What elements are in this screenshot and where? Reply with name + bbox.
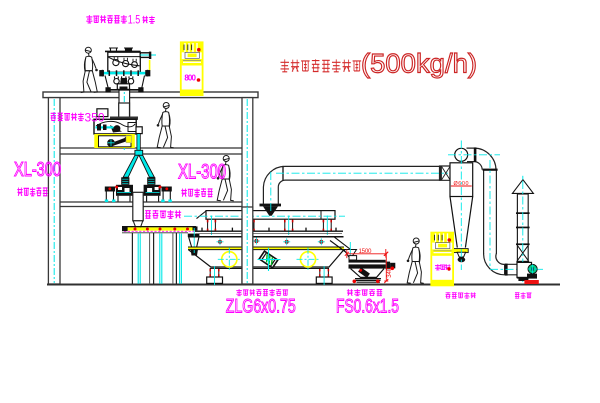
svg-text:ZLG6x0.75: ZLG6x0.75: [226, 297, 296, 318]
svg-text:XL-300: XL-300: [14, 159, 61, 181]
svg-text:XL-300: XL-300: [178, 161, 226, 184]
svg-text:800: 800: [184, 73, 196, 82]
svg-text:1.5: 1.5: [128, 13, 141, 27]
svg-text:350: 350: [85, 110, 105, 124]
svg-text:(500kg/h): (500kg/h): [361, 49, 477, 79]
svg-text:FS0.6x1.5: FS0.6x1.5: [336, 297, 399, 318]
svg-text:340: 340: [386, 267, 393, 278]
svg-text:1500: 1500: [359, 248, 373, 255]
